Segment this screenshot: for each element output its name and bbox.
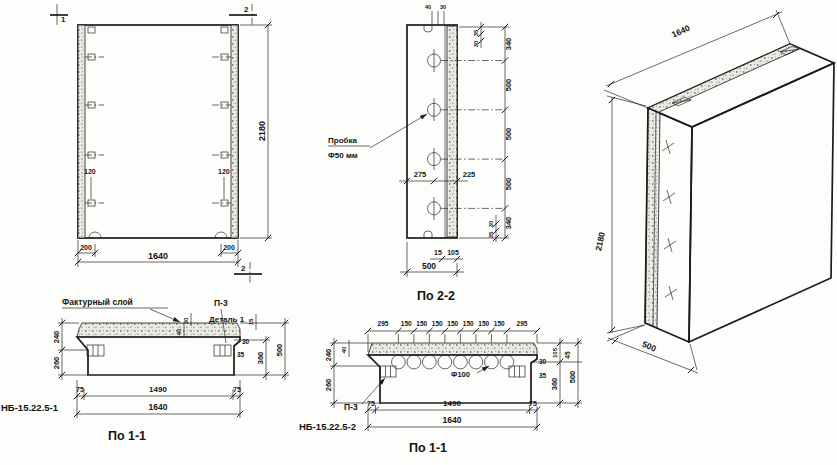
section-1-1-right-view: 295 150 150 150 150 150 150 150 295 Ф100	[299, 320, 582, 455]
front-elevation-view: 120 120 200 200 1640 2180 1 2 2	[50, 4, 272, 284]
dim-295-right: 295	[517, 320, 528, 327]
dim-75-right: 75	[233, 386, 241, 393]
dim-30-top-side: 30	[473, 40, 479, 47]
dim-120-right: 120	[218, 168, 230, 175]
left-facing-strip	[78, 25, 85, 238]
dim-15: 15	[434, 249, 442, 256]
isometric-view: 1640 2180 500	[593, 10, 834, 373]
dim-360: 360	[256, 352, 265, 365]
dim-40-facing: 40	[341, 346, 347, 353]
dim-500: 500	[568, 371, 577, 384]
dim-1490: 1490	[443, 399, 461, 408]
dim-thickness-500: 500	[422, 261, 436, 271]
facing-layer	[368, 343, 537, 355]
dim-1640: 1640	[149, 402, 168, 412]
dim-width-1640: 1640	[148, 251, 168, 261]
facing-layer-edge	[447, 26, 457, 237]
dim-75-right: 75	[529, 400, 537, 407]
section-marker-2-top: 2	[244, 5, 249, 14]
dim-260: 260	[324, 379, 333, 392]
large-face	[689, 63, 834, 342]
dim-75-left: 75	[76, 386, 84, 393]
dim-45: 45	[564, 351, 571, 359]
channel-embeds	[87, 345, 231, 356]
dim-35-bottom-side: 35	[488, 231, 494, 238]
section-1-1-left-view: Фактурный слой П-3 Деталь 1 240 260 30 4…	[1, 297, 289, 443]
loop-right	[215, 232, 227, 238]
dim-200-left: 200	[80, 244, 92, 251]
dim-360: 360	[550, 378, 559, 391]
dim-105: 105	[447, 249, 459, 256]
dim-30-facing: 30	[183, 317, 189, 324]
dim-200-right: 200	[223, 244, 235, 251]
top-loop-recess	[424, 25, 432, 32]
dim-150-2: 150	[416, 320, 427, 327]
iso-dim-2180: 2180	[593, 231, 607, 252]
section-2-2-caption: По 2-2	[417, 289, 455, 303]
dim-150-1: 150	[401, 320, 412, 327]
iso-dim-1640: 1640	[670, 23, 692, 40]
dim-40-top: 40	[425, 4, 431, 10]
dim-500: 500	[275, 344, 284, 357]
dim-35-rib: 35	[539, 372, 547, 379]
dim-500-2: 500	[504, 128, 513, 141]
dim-150-3: 150	[432, 320, 443, 327]
dim-150-7: 150	[494, 320, 505, 327]
part-mark-1: НБ-15.22.5-1	[1, 402, 59, 413]
dim-260: 260	[52, 357, 61, 370]
drawing-canvas: 120 120 200 200 1640 2180 1 2 2	[0, 0, 837, 465]
dim-150-4: 150	[447, 320, 458, 327]
dim-height-2180: 2180	[257, 121, 267, 141]
detail-label: Деталь 1	[209, 315, 245, 324]
holes-f100	[392, 355, 514, 369]
dim-30-rib: 30	[539, 358, 547, 365]
right-facing-strip	[231, 25, 238, 238]
technical-drawing-sheet: 120 120 200 200 1640 2180 1 2 2	[0, 0, 837, 465]
hole-label: Ф100	[451, 370, 470, 379]
dim-150-6: 150	[478, 320, 489, 327]
anchor-crosses	[662, 140, 677, 300]
dim-275: 275	[414, 170, 427, 179]
dim-225: 225	[463, 170, 476, 179]
facing-layer-top	[648, 44, 800, 113]
section-2-2-view: 340 500 500 500 340 40 30 35 30 30 35 27…	[328, 4, 513, 303]
dim-295-left: 295	[378, 320, 389, 327]
dim-340-bottom: 340	[504, 217, 513, 230]
dim-240: 240	[52, 331, 61, 344]
dim-340-top: 340	[504, 38, 513, 51]
channel-label: П-3	[214, 298, 228, 308]
dim-105: 105	[552, 347, 558, 358]
bottom-loop-recess	[424, 231, 432, 238]
channel-label: П-3	[344, 402, 358, 412]
dim-35-top: 35	[473, 29, 479, 36]
plug-label-line2: Ф50 мм	[328, 151, 358, 160]
dim-30-rib: 30	[242, 338, 250, 345]
dim-35-rib: 35	[237, 351, 245, 358]
section-marker-1: 1	[61, 15, 66, 24]
panel-body	[368, 355, 537, 403]
dim-240: 240	[324, 349, 333, 362]
dim-75-left: 75	[367, 400, 375, 407]
loop-left	[89, 232, 101, 238]
dim-500-3: 500	[504, 178, 513, 191]
facing-layer	[77, 323, 240, 337]
dim-500-1: 500	[504, 79, 513, 92]
dim-1490: 1490	[149, 385, 167, 394]
plug-label-line1: Пробка	[328, 136, 357, 145]
dim-1640: 1640	[443, 415, 462, 425]
dim-30-bottom-side: 30	[488, 220, 494, 227]
facing-layer-label: Фактурный слой	[62, 297, 133, 307]
section-1-1-right-caption: По 1-1	[409, 441, 447, 455]
section-marker-2-bottom: 2	[241, 264, 246, 273]
dim-120-left: 120	[84, 168, 96, 175]
dim-40-facing: 40	[176, 328, 182, 335]
anchor-ties	[85, 27, 231, 206]
plugs	[428, 49, 506, 220]
dim-150-5: 150	[463, 320, 474, 327]
dim-30-top: 30	[440, 4, 446, 10]
part-mark-2: НБ-15.22.5-2	[299, 421, 356, 432]
dim-15-right: 15	[248, 318, 254, 325]
section-1-1-left-caption: По 1-1	[108, 429, 146, 443]
